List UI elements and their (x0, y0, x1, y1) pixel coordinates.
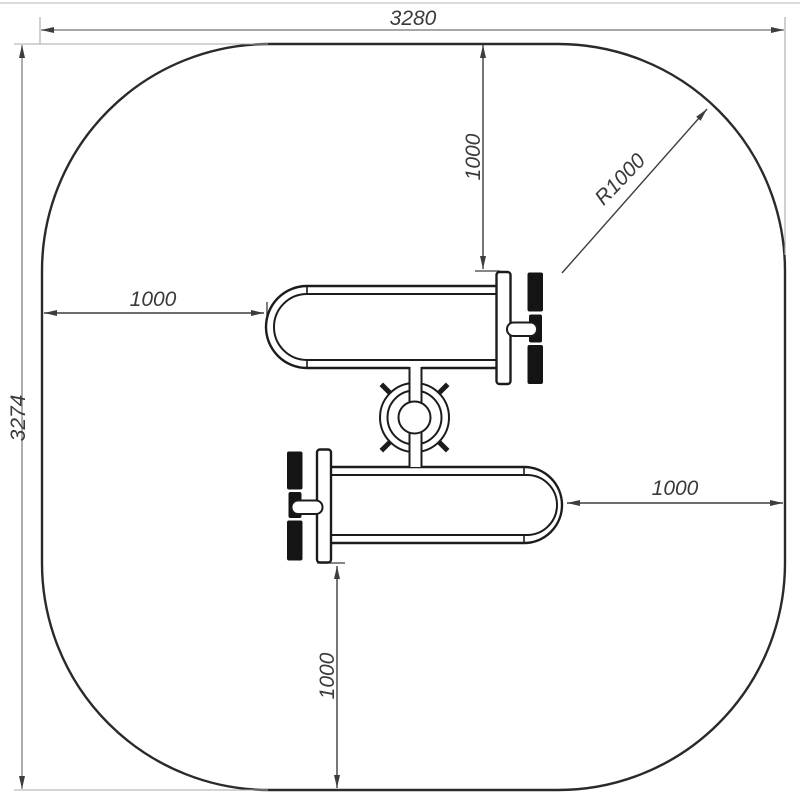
top-unit-frame-inner (274, 294, 502, 360)
dimension-left-offset: 1000 (44, 288, 264, 313)
top-unit-pedal-lower (528, 345, 544, 384)
dimension-right-offset: 1000 (567, 477, 783, 503)
dimension-overall-height: 3274 (7, 45, 30, 789)
drawing-canvas: 3280 3274 1000 R1000 1000 1000 1000 (0, 0, 800, 800)
dimension-overall-width: 3280 (41, 7, 784, 30)
central-hub (380, 365, 449, 467)
equipment-unit-top (266, 272, 543, 384)
dimension-bottom-offset: 1000 (316, 566, 339, 788)
bottom-unit-pedal-lower (287, 521, 303, 561)
hub-center-cap (399, 402, 431, 434)
equipment-unit-bottom (287, 450, 562, 563)
dim-label-left-offset: 1000 (130, 288, 177, 311)
top-unit-axle-pin (507, 323, 537, 337)
bottom-unit-axle-pin (292, 501, 323, 515)
bottom-unit-frame-inner (326, 475, 557, 535)
dim-label-overall-width: 3280 (390, 7, 437, 30)
technical-drawing: 3280 3274 1000 R1000 1000 1000 1000 (0, 0, 800, 800)
dim-label-right-offset: 1000 (652, 477, 699, 500)
dimension-corner-radius: R1000 (562, 109, 707, 273)
dim-label-overall-height: 3274 (7, 395, 30, 442)
dimension-top-offset: 1000 (462, 45, 485, 269)
top-unit-pedal-upper (528, 273, 544, 312)
dim-line-corner-radius (562, 109, 707, 273)
dim-label-top-offset: 1000 (462, 133, 485, 180)
bottom-unit-pedal-upper (287, 452, 303, 490)
dim-label-bottom-offset: 1000 (316, 652, 339, 699)
dim-label-corner-radius: R1000 (591, 149, 651, 210)
